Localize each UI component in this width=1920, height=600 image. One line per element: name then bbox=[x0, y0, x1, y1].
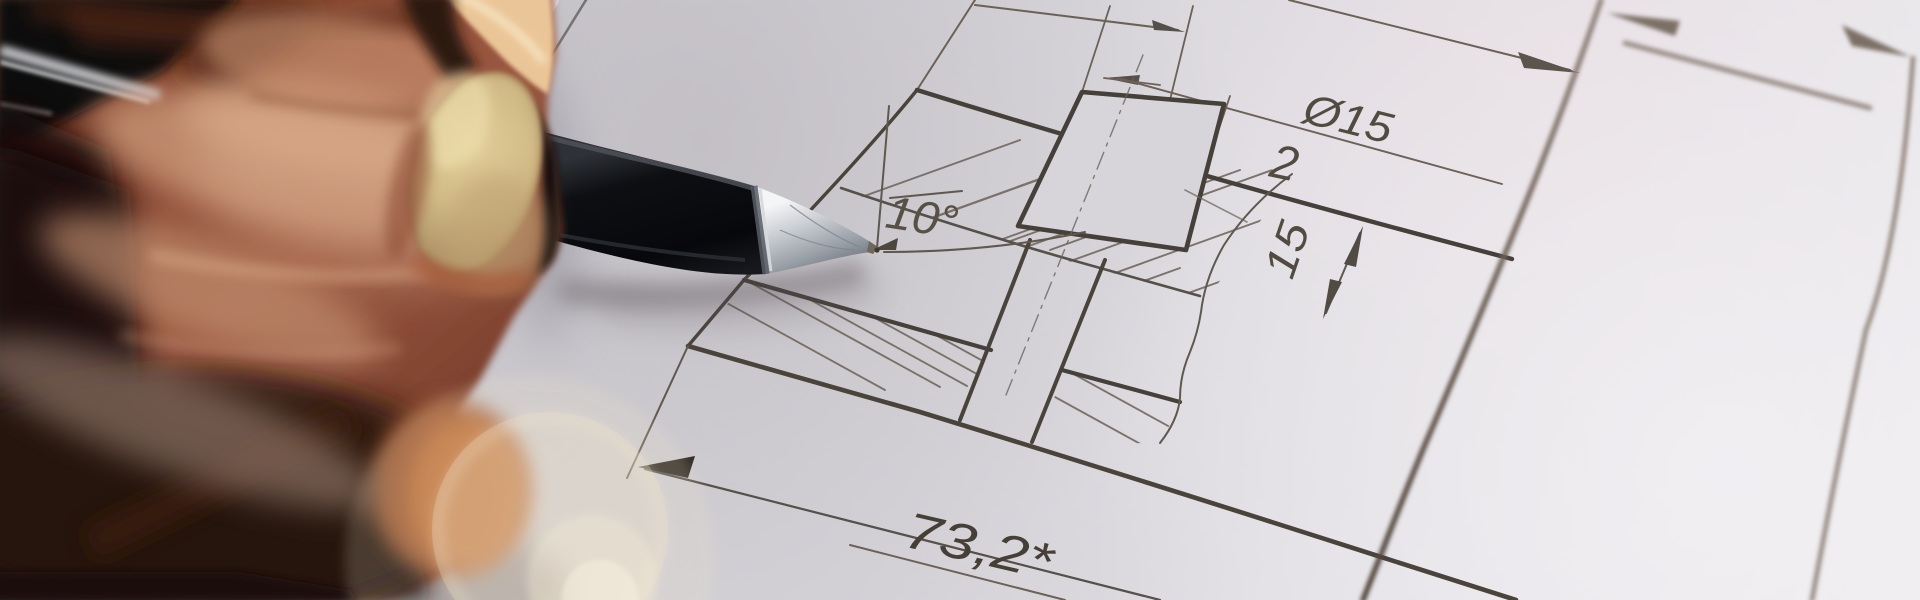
svg-text:10°: 10° bbox=[882, 186, 961, 249]
